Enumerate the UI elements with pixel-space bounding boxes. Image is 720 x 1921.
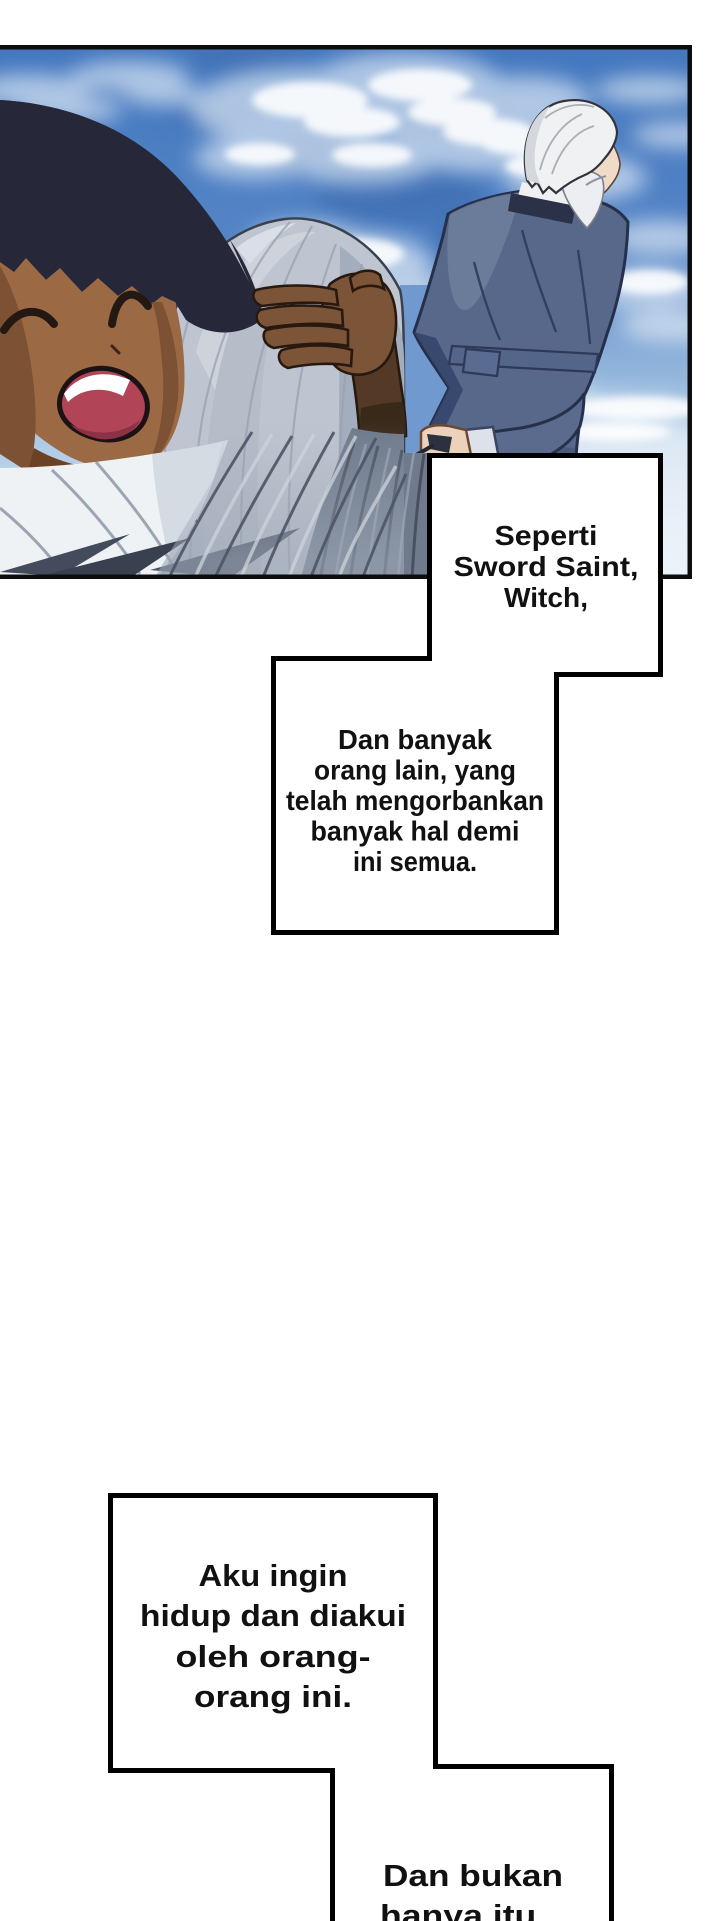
svg-text:orang lain, yang: orang lain, yang: [314, 755, 516, 786]
svg-text:hanya itu...: hanya itu...: [380, 1898, 566, 1921]
svg-text:Sword Saint,: Sword Saint,: [454, 551, 639, 582]
svg-text:telah mengorbankan: telah mengorbankan: [286, 785, 544, 816]
svg-text:Dan banyak: Dan banyak: [338, 724, 492, 755]
svg-text:orang ini.: orang ini.: [194, 1679, 352, 1714]
svg-text:oleh orang-: oleh orang-: [176, 1639, 371, 1674]
svg-text:Witch,: Witch,: [504, 582, 588, 613]
svg-text:hidup dan diakui: hidup dan diakui: [140, 1598, 406, 1633]
svg-text:Dan bukan: Dan bukan: [383, 1858, 563, 1893]
svg-text:Seperti: Seperti: [495, 520, 598, 551]
svg-text:Aku ingin: Aku ingin: [199, 1558, 348, 1593]
svg-text:ini semua.: ini semua.: [353, 846, 477, 877]
svg-text:banyak hal demi: banyak hal demi: [311, 816, 520, 847]
